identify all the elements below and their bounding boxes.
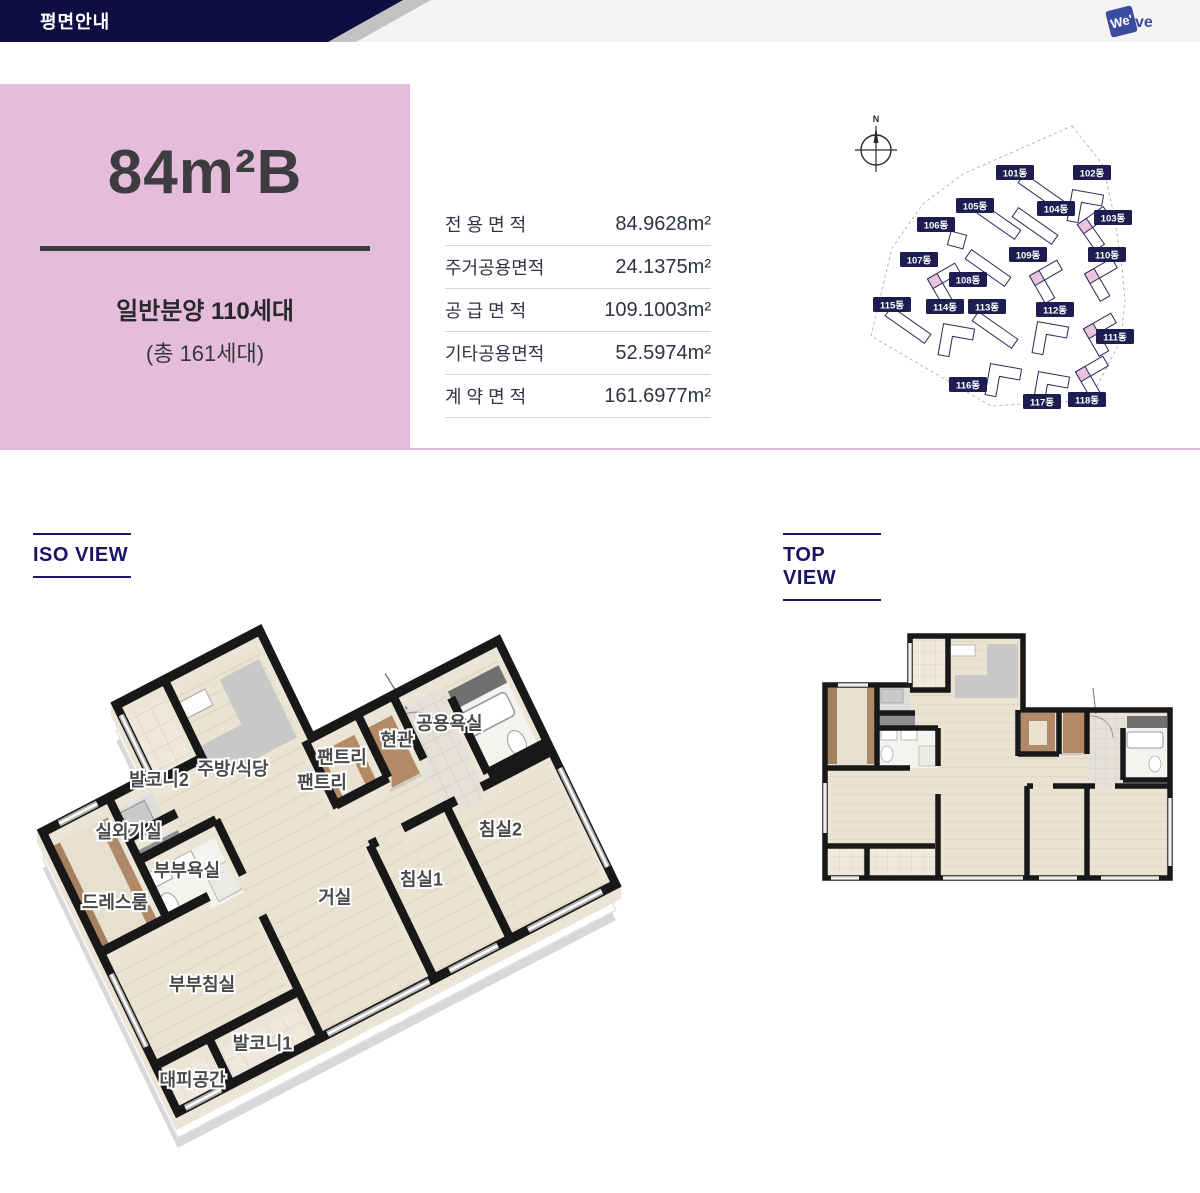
svg-text:115동: 115동 xyxy=(880,301,904,312)
building-111동: 111동 xyxy=(1083,313,1134,356)
area-row-value: 109.1003m² xyxy=(604,299,711,322)
weve-logo: We' ve xyxy=(1108,7,1172,39)
site-map: N 101동102동103동104동105동106동107동108동109동11… xyxy=(845,108,1195,428)
compass-icon: N xyxy=(855,114,897,172)
room-label: 실외기실 xyxy=(95,822,161,842)
building-105동: 105동 xyxy=(956,198,1021,239)
area-row-label: 기타공용면적 xyxy=(445,340,544,366)
area-row-label: 주거공용면적 xyxy=(445,254,544,280)
room-label: 침실2 xyxy=(479,819,522,839)
room-label: 팬트리 xyxy=(297,772,347,792)
area-row-label: 계 약 면 적 xyxy=(445,383,526,409)
building-label: 115동 xyxy=(873,297,911,312)
logo-text-primary: We' xyxy=(1109,12,1134,32)
svg-text:111동: 111동 xyxy=(1103,333,1127,344)
room-label: 팬트리 xyxy=(317,747,367,767)
room-label: 드레스룸 xyxy=(82,893,148,913)
building-110동: 110동 xyxy=(1084,247,1127,301)
room-label: 발코니1 xyxy=(233,1034,293,1054)
building-label: 104동 xyxy=(1037,201,1075,216)
top-view-label: TOP VIEW xyxy=(783,533,881,601)
building-113동: 113동 xyxy=(968,299,1018,348)
svg-text:107동: 107동 xyxy=(907,256,932,267)
room-label: 공용욕실 xyxy=(416,713,482,733)
building-118동: 118동 xyxy=(1068,356,1119,407)
iso-view-label: ISO VIEW xyxy=(33,533,131,578)
building-label: 113동 xyxy=(968,299,1006,314)
room-label: 부부침실 xyxy=(169,974,235,994)
svg-text:112동: 112동 xyxy=(1043,306,1067,317)
room-label: 대피공간 xyxy=(159,1070,226,1090)
buildings-layer: 101동102동103동104동105동106동107동108동109동110동… xyxy=(873,165,1134,409)
area-row-label: 전 용 면 적 xyxy=(445,211,526,237)
building-label: 105동 xyxy=(956,198,994,213)
table-row: 공 급 면 적 109.1003m² xyxy=(445,289,711,332)
table-row: 기타공용면적 52.5974m² xyxy=(445,332,711,375)
room-label: 현관 xyxy=(380,730,414,750)
unit-summary-panel: 84m²B 일반분양 110세대 (총 161세대) xyxy=(0,84,410,450)
unit-title-divider xyxy=(40,246,370,251)
logo-text-secondary: ve xyxy=(1135,14,1153,32)
floor-plan-page: 평면안내 We' ve 84m²B 일반분양 110세대 (총 161세대) 전… xyxy=(0,0,1200,1193)
svg-text:105동: 105동 xyxy=(963,202,988,213)
area-row-value: 161.6977m² xyxy=(604,385,711,408)
svg-text:118동: 118동 xyxy=(1075,396,1099,407)
table-row: 주거공용면적 24.1375m² xyxy=(445,246,711,289)
building-label: 101동 xyxy=(996,165,1034,180)
area-row-label: 공 급 면 적 xyxy=(445,297,526,323)
room-label: 거실 xyxy=(318,887,351,907)
building-label: 112동 xyxy=(1036,302,1074,317)
area-row-value: 52.5974m² xyxy=(615,342,711,365)
building-104동: 104동 xyxy=(1012,201,1075,244)
building-112동: 112동 xyxy=(1032,302,1074,358)
floor-plans-svg: 공용욕실팬트리현관팬트리주방/식당발코니2침실2실외기실침실1부부욕실드레스룸거… xyxy=(0,600,1200,1193)
building-label: 108동 xyxy=(949,272,987,287)
building-114동: 114동 xyxy=(926,299,975,360)
building-label: 117동 xyxy=(1023,394,1061,409)
compass-north-label: N xyxy=(873,114,880,124)
svg-text:109동: 109동 xyxy=(1016,251,1041,262)
svg-text:114동: 114동 xyxy=(933,303,957,314)
building-label: 107동 xyxy=(900,252,938,267)
building-label: 111동 xyxy=(1096,329,1134,344)
svg-text:117동: 117동 xyxy=(1030,398,1054,409)
unit-type-title: 84m²B xyxy=(108,142,303,204)
room-label: 주방/식당 xyxy=(197,759,269,779)
svg-text:116동: 116동 xyxy=(956,381,980,392)
building-label: 102동 xyxy=(1073,165,1111,180)
room-label: 부부욕실 xyxy=(154,861,220,881)
room-label: 침실1 xyxy=(400,869,443,889)
logo-square-icon: We' xyxy=(1105,5,1138,38)
iso-view-floorplan: 공용욕실팬트리현관팬트리주방/식당발코니2침실2실외기실침실1부부욕실드레스룸거… xyxy=(8,600,616,1148)
area-table: 전 용 면 적 84.9628m² 주거공용면적 24.1375m² 공 급 면… xyxy=(445,203,711,418)
unit-supply-count: 일반분양 110세대 xyxy=(116,291,294,326)
building-116동: 116동 xyxy=(949,364,1022,400)
svg-text:108동: 108동 xyxy=(956,276,981,287)
building-label: 118동 xyxy=(1068,392,1106,407)
svg-text:104동: 104동 xyxy=(1044,205,1069,216)
svg-text:106동: 106동 xyxy=(924,221,949,232)
svg-text:110동: 110동 xyxy=(1095,251,1119,262)
top-view-floorplan xyxy=(825,636,1170,878)
room-label: 발코니2 xyxy=(129,770,189,790)
building-109동: 109동 xyxy=(1009,247,1073,303)
building-106동: 106동 xyxy=(917,217,967,249)
building-117동: 117동 xyxy=(1023,372,1070,409)
building-label: 103동 xyxy=(1094,210,1132,225)
site-map-svg: N 101동102동103동104동105동106동107동108동109동11… xyxy=(845,108,1195,428)
building-label: 114동 xyxy=(926,299,964,314)
svg-text:103동: 103동 xyxy=(1101,214,1126,225)
page-title: 평면안내 xyxy=(40,0,110,42)
svg-text:113동: 113동 xyxy=(975,303,999,314)
building-label: 110동 xyxy=(1088,247,1126,262)
building-label: 109동 xyxy=(1009,247,1047,262)
building-103동: 103동 xyxy=(1077,207,1132,251)
table-row: 계 약 면 적 161.6977m² xyxy=(445,375,711,418)
svg-text:101동: 101동 xyxy=(1003,169,1028,180)
building-label: 116동 xyxy=(949,377,987,392)
header-bar: 평면안내 We' ve xyxy=(0,0,1200,42)
building-label: 106동 xyxy=(917,217,955,232)
svg-text:102동: 102동 xyxy=(1080,169,1105,180)
area-row-value: 24.1375m² xyxy=(615,256,711,279)
area-row-value: 84.9628m² xyxy=(615,213,711,236)
unit-total-count: (총 161세대) xyxy=(146,336,264,368)
table-row: 전 용 면 적 84.9628m² xyxy=(445,203,711,246)
building-115동: 115동 xyxy=(873,297,931,343)
